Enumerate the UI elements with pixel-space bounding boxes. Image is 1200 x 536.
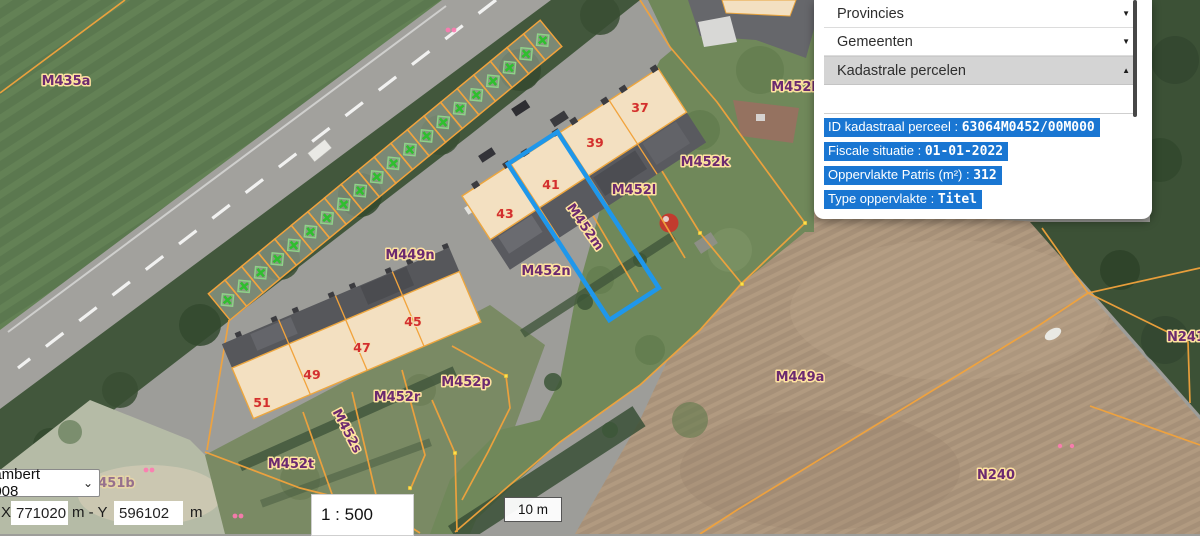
info-surface-area: Oppervlakte Patris (m²) : 312 — [824, 166, 1002, 185]
projection-select[interactable]: Lambert 2008 ⌄ — [0, 469, 100, 497]
parcel-label: M452n — [521, 264, 570, 279]
house-number: 47 — [353, 340, 370, 355]
scale-input[interactable] — [311, 494, 414, 536]
accordion-kadastrale-percelen[interactable]: Kadastrale percelen ▲ — [824, 56, 1136, 85]
layers-panel: Provincies ▼ Gemeenten ▼ Kadastrale perc… — [814, 0, 1152, 219]
accordion-gemeenten-label: Gemeenten — [837, 34, 913, 50]
info-surface-type: Type oppervlakte : Titel — [824, 190, 982, 209]
parcel-info: ID kadastraal perceel : 63064M0452/00M00… — [824, 118, 1152, 213]
panel-separator — [824, 113, 1136, 114]
house-number: 51 — [253, 395, 270, 410]
parcel-label: M452r — [374, 390, 421, 405]
parcel-label: M435a — [42, 74, 91, 89]
chevron-down-icon: ▼ — [1122, 9, 1130, 18]
accordion-gemeenten[interactable]: Gemeenten ▼ — [824, 28, 1136, 56]
coord-unit-label: m — [190, 504, 203, 521]
house-number: 39 — [586, 135, 603, 150]
coord-x-label: X — [1, 504, 11, 521]
parcel-label: M449a — [776, 370, 825, 385]
parcel-label: M449n — [385, 248, 434, 263]
parcel-label: M452t — [268, 457, 314, 472]
coord-x-input[interactable] — [11, 501, 68, 525]
house-number: 37 — [631, 100, 648, 115]
parcel-label: M452k — [681, 155, 730, 170]
accordion-provincies-label: Provincies — [837, 6, 904, 22]
info-surface-type-value: Titel — [938, 192, 977, 207]
info-surface-area-value: 312 — [973, 168, 996, 183]
panel-scrollbar[interactable] — [1133, 0, 1137, 117]
chevron-down-icon: ▼ — [1122, 37, 1130, 46]
scale-bar-label: 10 m — [518, 502, 548, 517]
accordion-kadastrale-percelen-label: Kadastrale percelen — [837, 63, 966, 79]
parcel-label: N241 — [1167, 330, 1200, 345]
house-number: 41 — [542, 177, 559, 192]
chevron-down-icon: ⌄ — [83, 478, 93, 488]
parcel-label: M452l — [612, 183, 657, 198]
house-number: 45 — [404, 314, 421, 329]
projection-select-value: Lambert 2008 — [0, 466, 75, 500]
house-number: 43 — [496, 206, 513, 221]
accordion-provincies[interactable]: Provincies ▼ — [824, 0, 1136, 28]
coord-separator-label: m - Y — [72, 504, 108, 521]
chevron-up-icon: ▲ — [1122, 66, 1130, 75]
scale-bar: 10 m — [504, 497, 562, 522]
info-fiscal-situation-value: 01-01-2022 — [925, 144, 1003, 159]
info-fiscal-situation: Fiscale situatie : 01-01-2022 — [824, 142, 1008, 161]
info-parcel-id-value: 63064M0452/00M000 — [962, 120, 1095, 135]
house-number: 49 — [303, 367, 320, 382]
parcel-label: N240 — [977, 468, 1015, 483]
parcel-label: M452p — [441, 375, 490, 390]
coord-y-input[interactable] — [114, 501, 183, 525]
info-parcel-id: ID kadastraal perceel : 63064M0452/00M00… — [824, 118, 1100, 137]
